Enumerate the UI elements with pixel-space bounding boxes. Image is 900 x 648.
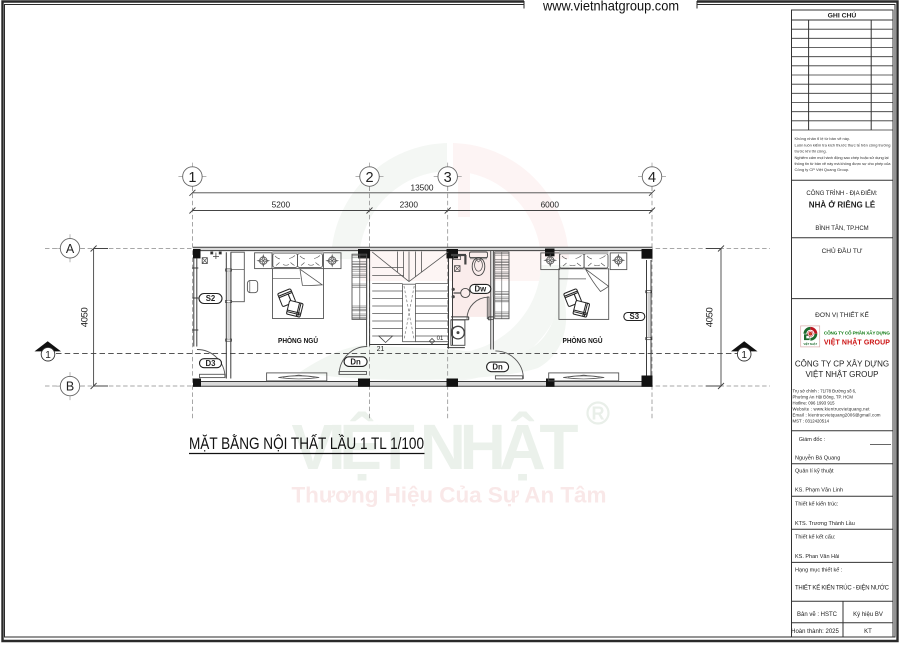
svg-text:Ký hiệu BV: Ký hiệu BV <box>853 612 883 618</box>
svg-text:VIỆT NHẬT GROUP: VIỆT NHẬT GROUP <box>824 338 890 347</box>
svg-text:Dn: Dn <box>492 363 503 372</box>
svg-text:Hotline: 096 1993 915: Hotline: 096 1993 915 <box>793 401 836 406</box>
svg-text:4050: 4050 <box>705 307 716 327</box>
svg-text:Website : www.kientrucvietquan: Website : www.kientrucvietquang.net <box>793 407 871 412</box>
svg-text:www.vietnhatgroup.com: www.vietnhatgroup.com <box>542 0 679 14</box>
svg-text:Luôn luôn kiểm tra kích thước: Luôn luôn kiểm tra kích thước thực tế tr… <box>795 143 891 148</box>
svg-text:Phường An Hội Đông, TP. HCM: Phường An Hội Đông, TP. HCM <box>793 395 854 400</box>
svg-text:4: 4 <box>648 170 656 186</box>
svg-text:Giám đốc :: Giám đốc : <box>799 437 826 443</box>
svg-text:Nghiêm cấm mọi hành động sao c: Nghiêm cấm mọi hành động sao chép hoặc s… <box>795 155 889 160</box>
svg-text:Thiết kế kiến trúc:: Thiết kế kiến trúc: <box>795 502 839 508</box>
svg-text:4050: 4050 <box>80 307 91 327</box>
svg-text:VIỆT NHẬT GROUP: VIỆT NHẬT GROUP <box>805 370 878 379</box>
svg-text:1: 1 <box>45 350 51 361</box>
svg-text:A: A <box>66 242 75 256</box>
svg-text:Nguyễn Bá Quang: Nguyễn Bá Quang <box>795 455 840 462</box>
svg-text:KTS. Trương Thành Lầu: KTS. Trương Thành Lầu <box>795 521 855 527</box>
svg-text:Dn: Dn <box>350 357 361 366</box>
svg-text:CÔNG TRÌNH - ĐỊA ĐIỂM:: CÔNG TRÌNH - ĐỊA ĐIỂM: <box>806 190 878 197</box>
svg-text:1: 1 <box>741 350 747 361</box>
svg-text:2300: 2300 <box>400 200 419 210</box>
svg-text:KS. Phan Văn Hải: KS. Phan Văn Hải <box>795 554 839 560</box>
svg-text:13500: 13500 <box>410 182 433 192</box>
svg-text:Trụ sở chính : 71/78 Đường số: Trụ sở chính : 71/78 Đường số 6, <box>793 389 857 394</box>
svg-text:KS. Phạm Văn Linh: KS. Phạm Văn Linh <box>795 488 843 494</box>
svg-text:B: B <box>66 380 74 394</box>
svg-text:3: 3 <box>444 170 452 186</box>
svg-text:NHÀ Ở RIÊNG LẺ: NHÀ Ở RIÊNG LẺ <box>809 201 876 210</box>
svg-text:D3: D3 <box>206 359 217 368</box>
svg-text:KT: KT <box>864 629 872 635</box>
svg-text:Hoàn thành: 2025: Hoàn thành: 2025 <box>791 629 839 635</box>
svg-text:Thương Hiệu Của Sự An Tâm: Thương Hiệu Của Sự An Tâm <box>292 483 607 508</box>
svg-text:THIẾT KẾ KIẾN TRÚC - ĐIỆN NƯỚC: THIẾT KẾ KIẾN TRÚC - ĐIỆN NƯỚC <box>795 584 890 592</box>
svg-text:MST : 0312420514: MST : 0312420514 <box>793 419 830 424</box>
svg-text:Không nhân tỉ lệ từ bản vẽ này: Không nhân tỉ lệ từ bản vẽ này. <box>795 136 850 141</box>
svg-text:21: 21 <box>377 346 385 353</box>
svg-text:Bản vẽ : HSTC: Bản vẽ : HSTC <box>797 612 838 618</box>
svg-text:5200: 5200 <box>272 200 291 210</box>
svg-text:1: 1 <box>188 170 196 186</box>
svg-text:GHI CHÚ: GHI CHÚ <box>828 11 857 20</box>
svg-text:CÔNG TY CP XÂY DỰNG: CÔNG TY CP XÂY DỰNG <box>795 360 889 369</box>
svg-text:thông tin từ bản vẽ này mà khô: thông tin từ bản vẽ này mà không được sự… <box>795 161 892 166</box>
svg-text:Quản lí kỹ thuật: Quản lí kỹ thuật <box>795 469 834 475</box>
svg-text:BÌNH TÂN, TP.HCM: BÌNH TÂN, TP.HCM <box>815 225 868 232</box>
svg-text:R: R <box>592 404 605 424</box>
svg-text:6000: 6000 <box>541 200 560 210</box>
svg-text:PHÒNG NGỦ: PHÒNG NGỦ <box>563 336 603 345</box>
svg-text:01: 01 <box>437 336 444 342</box>
svg-text:S2: S2 <box>206 294 216 303</box>
svg-text:Thiết kế kết cấu:: Thiết kế kết cấu: <box>795 535 836 541</box>
svg-text:trước khi thi công.: trước khi thi công. <box>795 149 827 154</box>
svg-text:2: 2 <box>365 170 373 186</box>
svg-text:Hạng mục thiết kế :: Hạng mục thiết kế : <box>795 568 843 574</box>
svg-text:MẶT BẰNG NỘI THẤT LẦU 1 TL 1/1: MẶT BẰNG NỘI THẤT LẦU 1 TL 1/100 <box>189 434 424 453</box>
svg-text:S3: S3 <box>630 312 640 321</box>
svg-text:PHÒNG NGỦ: PHÒNG NGỦ <box>278 336 318 345</box>
svg-text:Dw: Dw <box>474 285 487 294</box>
svg-text:Email : kientrucvietquang2006@: Email : kientrucvietquang2006@gmail.com <box>793 413 881 418</box>
svg-text:CÔNG TY CỔ PHẦN XÂY DỰNG: CÔNG TY CỔ PHẦN XÂY DỰNG <box>824 329 890 336</box>
svg-text:Công ty CP Việt Quang Group.: Công ty CP Việt Quang Group. <box>795 167 850 172</box>
